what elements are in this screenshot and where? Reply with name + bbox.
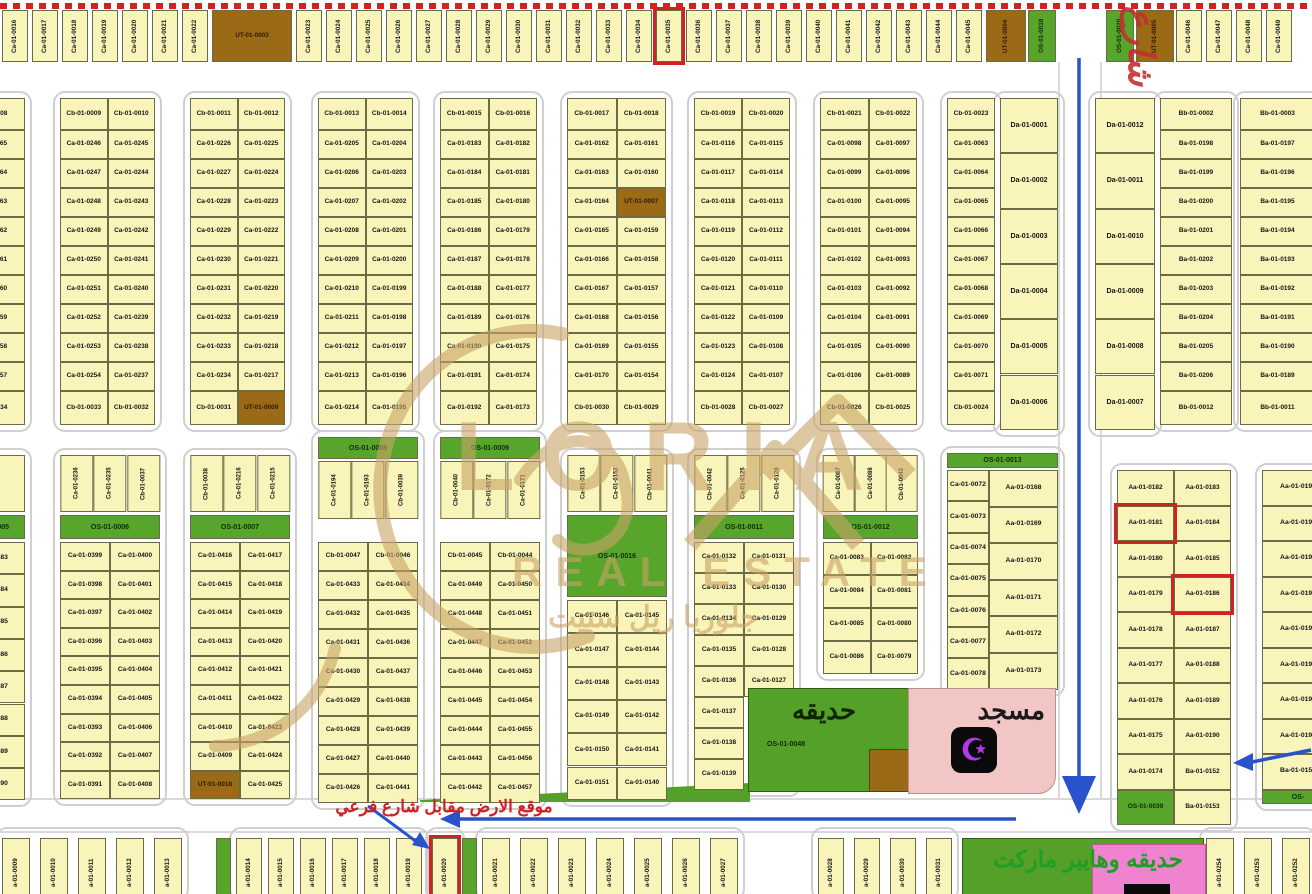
plot-ca-01-0175: Ca-01-0175	[489, 333, 538, 362]
plot-ca-01-0248: Ca-01-0248	[60, 188, 108, 217]
plot-ca-01-0123: Ca-01-0123	[694, 333, 742, 362]
plot-a-01-0254: a-01-0254	[1206, 838, 1234, 894]
plot-ca-01-0069: Ca-01-0069	[947, 304, 995, 333]
plot-ca-01-0251: Ca-01-0251	[60, 275, 108, 304]
plot-ca-01-0041: Ca-01-0041	[836, 10, 862, 62]
plot-ca-01-0176: Ca-01-0176	[489, 304, 538, 333]
plot-ca-01-0182: Ca-01-0182	[489, 130, 538, 159]
plot-aa-01-0191: Aa-01-0191	[1262, 719, 1312, 755]
plot-ca-01-0246: Ca-01-0246	[60, 130, 108, 159]
plot-ca-01-0142: Ca-01-0142	[617, 700, 667, 733]
plot-ca-01-0241: Ca-01-0241	[108, 246, 156, 275]
plot-ca-01-0018: Ca-01-0018	[62, 10, 88, 62]
plot-a-01-0013: a-01-0013	[154, 838, 182, 894]
plot-ca-01-0406: Ca-01-0406	[110, 714, 160, 743]
plot-ca-01-0405: Ca-01-0405	[110, 685, 160, 714]
plot-ca-01-0447: Ca-01-0447	[440, 629, 490, 658]
plot-ba-01-0199: Ba-01-0199	[1160, 159, 1232, 188]
plot-ca-01-0117: Ca-01-0117	[694, 159, 742, 188]
plot-ba-01-0190: Ba-01-0190	[1240, 333, 1312, 362]
plot-ba-01-0195: Ba-01-0195	[1240, 188, 1312, 217]
plot-a-01-0011: a-01-0011	[78, 838, 106, 894]
plot-ca-01-0171: Ca-01-0171	[507, 461, 540, 519]
plot-ca-01-0432: Ca-01-0432	[318, 600, 368, 629]
plot-ca-01-0143: Ca-01-0143	[617, 667, 667, 700]
plot-ca-01-0145: Ca-01-0145	[617, 600, 667, 633]
plot-ca-01-0098: Ca-01-0098	[820, 130, 869, 159]
plot-ca-01-0206: Ca-01-0206	[318, 159, 366, 188]
plot-da-01-0010: Da-01-0010	[1095, 209, 1155, 264]
plot-aa-01-0188: Aa-01-0188	[1174, 648, 1231, 684]
plot-da-01-0001: Da-01-0001	[1000, 98, 1058, 153]
plot-ca-01-0392: Ca-01-0392	[60, 742, 110, 771]
plot-cb-01-0038: Cb-01-0038	[190, 455, 223, 512]
plot-ca-01-0154: Ca-01-0154	[617, 362, 667, 391]
plot-ca-01-0077: Ca-01-0077	[947, 627, 989, 658]
plot-os-01-0007: OS-01-0007	[190, 515, 290, 539]
plot-ca-01-0132: Ca-01-0132	[694, 542, 744, 573]
plot-ca-01-0090: Ca-01-0090	[869, 333, 918, 362]
plot-ca-01-0100: Ca-01-0100	[820, 188, 869, 217]
plot-ba-01-0205: Ba-01-0205	[1160, 333, 1232, 362]
plot-ca-01-0147: Ca-01-0147	[567, 633, 617, 666]
plot-ca-01-0031: Ca-01-0031	[536, 10, 562, 62]
plot-aa-01-0180: Aa-01-0180	[1117, 541, 1174, 577]
plot-ca-01-0162: Ca-01-0162	[567, 130, 617, 159]
plot-ca-01-0159: Ca-01-0159	[617, 217, 667, 246]
plot-aa-01-0177: Aa-01-0177	[1117, 648, 1174, 684]
plot-da-01-0006: Da-01-0006	[1000, 375, 1058, 430]
plot-ca-01-0450: Ca-01-0450	[490, 571, 540, 600]
plot-ca-01-0253: Ca-01-0253	[60, 333, 108, 362]
plot-ca-01-0027: Ca-01-0027	[416, 10, 442, 62]
plot-ca-01-0452: Ca-01-0452	[490, 629, 540, 658]
plot-ca-01-0068: Ca-01-0068	[947, 275, 995, 304]
plot-ca-01-0082: Ca-01-0082	[871, 542, 919, 575]
plot-cb-01-0042: Cb-01-0042	[694, 455, 727, 512]
plot-cb-01-0029: Cb-01-0029	[617, 391, 667, 425]
plot-ca-01-0438: Ca-01-0438	[368, 687, 418, 716]
mosque-area: مسجد ☪	[908, 688, 1056, 794]
plot-ca-01-0209: Ca-01-0209	[318, 246, 366, 275]
plot-ca-01-0065: Ca-01-0065	[947, 188, 995, 217]
plot-ca-01-0446: Ca-01-0446	[440, 658, 490, 687]
plot-ca-01-0434: Ca-01-0434	[368, 571, 418, 600]
plot-ca-01-0390: Ca-01-0390	[0, 768, 25, 800]
plot-ca-01-0124: Ca-01-0124	[694, 362, 742, 391]
plot-a-01-0025: a-01-0025	[634, 838, 662, 894]
plot-ca-01-0456: Ca-01-0456	[490, 745, 540, 774]
plot-ba-01-0200: Ba-01-0200	[1160, 188, 1232, 217]
plot-ca-01-0389: Ca-01-0389	[0, 736, 25, 768]
plot-ca-01-0173: Ca-01-0173	[489, 391, 538, 425]
plot-a-01-0027: a-01-0027	[710, 838, 738, 894]
plot-os-01-0005: OS-01-0005	[0, 515, 25, 539]
plot-ca-01-0420: Ca-01-0420	[240, 628, 290, 657]
plot-os-01-0009: OS-01-0009	[440, 437, 540, 459]
plot-ca-01-0080: Ca-01-0080	[871, 608, 919, 641]
plot-ca-01-0033: Ca-01-0033	[596, 10, 622, 62]
plot-ca-01-0232: Ca-01-0232	[190, 304, 238, 333]
plot-ca-01-0239: Ca-01-0239	[108, 304, 156, 333]
plot-ca-01-0453: Ca-01-0453	[490, 658, 540, 687]
plot-ca-01-0188: Ca-01-0188	[440, 275, 489, 304]
plot-ca-01-0195: Ca-01-0195	[366, 391, 414, 425]
plot-a-01-0252: a-01-0252	[1282, 838, 1310, 894]
plot-ca-01-0265: Ca-01-0265	[0, 130, 25, 159]
plot-ca-01-0423: Ca-01-0423	[240, 714, 290, 743]
plot-ca-01-0198: Ca-01-0198	[366, 304, 414, 333]
plot-ca-01-0101: Ca-01-0101	[820, 217, 869, 246]
plot-ba-01-0201: Ba-01-0201	[1160, 217, 1232, 246]
plot-ca-01-0071: Ca-01-0071	[947, 362, 995, 391]
plot-ca-01-0433: Ca-01-0433	[318, 571, 368, 600]
plot-ca-01-0164: Ca-01-0164	[567, 188, 617, 217]
plot-ca-01-0110: Ca-01-0110	[742, 275, 790, 304]
plot-cb-01-0044: Cb-01-0044	[490, 542, 540, 571]
plot-ca-01-0139: Ca-01-0139	[694, 759, 744, 790]
plot-ca-01-0140: Ca-01-0140	[617, 767, 667, 800]
plot-aa-01-0172: Aa-01-0172	[989, 616, 1058, 653]
plot-ca-01-0427: Ca-01-0427	[318, 745, 368, 774]
plot-ca-01-0187: Ca-01-0187	[440, 246, 489, 275]
plot-cb-01-0043: Cb-01-0043	[886, 455, 918, 512]
plot-ca-01-0236: Ca-01-0236	[60, 455, 93, 512]
plot-cb-01-0041: Cb-01-0041	[634, 455, 667, 512]
plot-cb-01-0027: Cb-01-0027	[742, 391, 790, 425]
plot-cell	[216, 838, 231, 894]
plot-ca-01-0235: Ca-01-0235	[93, 455, 126, 512]
plot-aa-01-0184: Aa-01-0184	[1174, 506, 1231, 542]
plot-ca-01-0149: Ca-01-0149	[567, 700, 617, 733]
plot-ca-01-0202: Ca-01-0202	[366, 188, 414, 217]
plot-cb-01-0024: Cb-01-0024	[947, 391, 995, 425]
plot-ca-01-0243: Ca-01-0243	[108, 188, 156, 217]
plot-ca-01-0114: Ca-01-0114	[742, 159, 790, 188]
plot-a-01-0031: a-01-0031	[926, 838, 952, 894]
plot-ba-01-0193: Ba-01-0193	[1240, 246, 1312, 275]
plot-a-01-0028: a-01-0028	[818, 838, 844, 894]
plot-ca-01-0207: Ca-01-0207	[318, 188, 366, 217]
plot-cb-01-0018: Cb-01-0018	[617, 98, 667, 130]
plot-ca-01-0220: Ca-01-0220	[238, 275, 286, 304]
plot-ca-01-0422: Ca-01-0422	[240, 685, 290, 714]
plot-ca-01-0024: Ca-01-0024	[326, 10, 352, 62]
plot-ca-01-0172: Ca-01-0172	[473, 461, 506, 519]
plot-ca-01-0191: Ca-01-0191	[440, 362, 489, 391]
plot-ca-01-0448: Ca-01-0448	[440, 600, 490, 629]
plot-ca-01-0151: Ca-01-0151	[567, 767, 617, 800]
road-edge-horizontal-bottom	[0, 831, 1312, 833]
plot-ca-01-0102: Ca-01-0102	[820, 246, 869, 275]
plot-ca-01-0092: Ca-01-0092	[869, 275, 918, 304]
plot-cb-01-0012: Cb-01-0012	[238, 98, 286, 130]
plot-os-01-0019: OS-01-0019	[1028, 10, 1056, 62]
plot-ca-01-0259: Ca-01-0259	[0, 304, 25, 333]
plot-os-01-0013: OS-01-0013	[947, 453, 1058, 468]
plot-ca-01-0214: Ca-01-0214	[318, 391, 366, 425]
plot-ca-01-0398: Ca-01-0398	[60, 571, 110, 600]
plot-ca-01-0161: Ca-01-0161	[617, 130, 667, 159]
plot-ca-01-0156: Ca-01-0156	[617, 304, 667, 333]
plot-ca-01-0252: Ca-01-0252	[60, 304, 108, 333]
plot-ba-01-0191: Ba-01-0191	[1240, 304, 1312, 333]
plot-ca-01-0138: Ca-01-0138	[694, 728, 744, 759]
plot-ca-01-0193: Ca-01-0193	[351, 461, 384, 519]
plot-ca-01-0157: Ca-01-0157	[617, 275, 667, 304]
plot-os-01-0039: OS-01-0039	[1117, 790, 1174, 826]
plot-ca-01-0419: Ca-01-0419	[240, 599, 290, 628]
plot-ca-01-0224: Ca-01-0224	[238, 159, 286, 188]
plot-ca-01-0104: Ca-01-0104	[820, 304, 869, 333]
site-location-note: موقع الارض مقابل شارع فرعي	[310, 797, 578, 817]
plot-ut-01-0007: UT-01-0007	[617, 188, 667, 217]
plot-ca-01-0126: Ca-01-0126	[761, 455, 794, 512]
plot-cb-01-0019: Cb-01-0019	[694, 98, 742, 130]
plot-ca-01-0105: Ca-01-0105	[820, 333, 869, 362]
plot-ca-01-0025: Ca-01-0025	[356, 10, 382, 62]
plot-ca-01-0063: Ca-01-0063	[947, 130, 995, 159]
plot-ca-01-0150: Ca-01-0150	[567, 733, 617, 766]
plot-cb-01-0037: Cb-01-0037	[127, 455, 160, 512]
plot-ca-01-0121: Ca-01-0121	[694, 275, 742, 304]
plot-a-01-0012: a-01-0012	[116, 838, 144, 894]
plot-ca-01-0264: Ca-01-0264	[0, 159, 25, 188]
plot-ba-01-0202: Ba-01-0202	[1160, 246, 1232, 275]
plot-ba-01-0151: Ba-01-0151	[1262, 754, 1312, 790]
plot-ca-01-0388: Ca-01-0388	[0, 704, 25, 736]
plot-ca-01-0148: Ca-01-0148	[567, 667, 617, 700]
plot-ca-01-0170: Ca-01-0170	[567, 362, 617, 391]
plot-ca-01-0386: Ca-01-0386	[0, 639, 25, 671]
plot-ca-01-0167: Ca-01-0167	[567, 275, 617, 304]
plot-aa-01-0193: Aa-01-0193	[1262, 648, 1312, 684]
plot-ca-01-0221: Ca-01-0221	[238, 246, 286, 275]
plot-ca-01-0158: Ca-01-0158	[617, 246, 667, 275]
plot-ca-01-0115: Ca-01-0115	[742, 130, 790, 159]
plot-a-01-0018: a-01-0018	[364, 838, 390, 894]
plot-ca-01-0408: Ca-01-0408	[110, 771, 160, 800]
plot-cb-01-0023: Cb-01-0023	[947, 98, 995, 130]
plot-ca-01-0200: Ca-01-0200	[366, 246, 414, 275]
plot-ca-01-0254: Ca-01-0254	[60, 362, 108, 391]
plot-ca-01-0247: Ca-01-0247	[60, 159, 108, 188]
plot-ca-01-0128: Ca-01-0128	[744, 635, 794, 666]
plot-ca-01-0425: Ca-01-0425	[240, 771, 290, 800]
plot-cb-01-0036: Cb-01-0036	[0, 455, 25, 512]
plot-ca-01-0017: Ca-01-0017	[32, 10, 58, 62]
plot-ca-01-0249: Ca-01-0249	[60, 217, 108, 246]
plot-ca-01-0445: Ca-01-0445	[440, 687, 490, 716]
plot-ca-01-0019: Ca-01-0019	[92, 10, 118, 62]
plot-ca-01-0085: Ca-01-0085	[823, 608, 871, 641]
plot-ca-01-0119: Ca-01-0119	[694, 217, 742, 246]
plot-ca-01-0076: Ca-01-0076	[947, 596, 989, 627]
plot-aa-01-0182: Aa-01-0182	[1117, 470, 1174, 506]
plot-aa-01-0174: Aa-01-0174	[1117, 754, 1174, 790]
plot-ca-01-0168: Ca-01-0168	[567, 304, 617, 333]
plot-bb-01-0012: Bb-01-0012	[1160, 391, 1232, 425]
plot-aa-01-0175: Aa-01-0175	[1117, 719, 1174, 755]
plot-ca-01-0227: Ca-01-0227	[190, 159, 238, 188]
plot-cb-01-0013: Cb-01-0013	[318, 98, 366, 130]
plot-ca-01-0192: Ca-01-0192	[440, 391, 489, 425]
plot-ca-01-0261: Ca-01-0261	[0, 246, 25, 275]
plot-da-01-0005: Da-01-0005	[1000, 319, 1058, 374]
plot-ba-01-0203: Ba-01-0203	[1160, 275, 1232, 304]
plot-ca-01-0384: Ca-01-0384	[0, 574, 25, 606]
plot-ca-01-0045: Ca-01-0045	[956, 10, 982, 62]
plot-ca-01-0263: Ca-01-0263	[0, 188, 25, 217]
plot-ca-01-0399: Ca-01-0399	[60, 542, 110, 571]
plot-ca-01-0211: Ca-01-0211	[318, 304, 366, 333]
plot-ca-01-0416: Ca-01-0416	[190, 542, 240, 571]
plot-ca-01-0229: Ca-01-0229	[190, 217, 238, 246]
plot-ca-01-0250: Ca-01-0250	[60, 246, 108, 275]
plot-ca-01-0403: Ca-01-0403	[110, 628, 160, 657]
plot-ca-01-0218: Ca-01-0218	[238, 333, 286, 362]
plot-cb-01-0014: Cb-01-0014	[366, 98, 414, 130]
plot-ca-01-0141: Ca-01-0141	[617, 733, 667, 766]
hypermarket-label: حديقه وهايبر ماركت	[972, 846, 1204, 873]
plot-ca-01-0402: Ca-01-0402	[110, 599, 160, 628]
plot-ca-01-0451: Ca-01-0451	[490, 600, 540, 629]
plot-ca-01-0035: Ca-01-0035	[656, 10, 682, 62]
plot-ca-01-0032: Ca-01-0032	[566, 10, 592, 62]
plot-ca-01-0046: Ca-01-0046	[1176, 10, 1202, 62]
plot-cb-01-0017: Cb-01-0017	[567, 98, 617, 130]
plot-ca-01-0026: Ca-01-0026	[386, 10, 412, 62]
plot-ca-01-0083: Ca-01-0083	[823, 542, 871, 575]
plot-ca-01-0180: Ca-01-0180	[489, 188, 538, 217]
plot-ba-01-0192: Ba-01-0192	[1240, 275, 1312, 304]
plot-ca-01-0075: Ca-01-0075	[947, 564, 989, 595]
plot-bb-01-0002: Bb-01-0002	[1160, 98, 1232, 130]
plot-ut-01-0018: UT-01-0018	[190, 771, 240, 800]
plot-cb-01-0040: Cb-01-0040	[440, 461, 473, 519]
plot-ca-01-0395: Ca-01-0395	[60, 656, 110, 685]
plot-aa-01-0197: Aa-01-0197	[1262, 506, 1312, 542]
plot-aa-01-0192: Aa-01-0192	[1262, 683, 1312, 719]
plot-ca-01-0165: Ca-01-0165	[567, 217, 617, 246]
plot-ca-01-0397: Ca-01-0397	[60, 599, 110, 628]
plot-ut-01-0004: UT-01-0004	[986, 10, 1026, 62]
plot-ba-01-0153: Ba-01-0153	[1174, 790, 1231, 826]
plot-ca-01-0111: Ca-01-0111	[742, 246, 790, 275]
plot-ut-01-0009: UT-01-0009	[238, 391, 286, 425]
plot-ca-01-0103: Ca-01-0103	[820, 275, 869, 304]
plot-ca-01-0396: Ca-01-0396	[60, 628, 110, 657]
plot-ca-01-0020: Ca-01-0020	[122, 10, 148, 62]
plot-ca-01-0205: Ca-01-0205	[318, 130, 366, 159]
plot-ca-01-0230: Ca-01-0230	[190, 246, 238, 275]
plot-ca-01-0260: Ca-01-0260	[0, 275, 25, 304]
plot-cell	[462, 838, 477, 894]
plot-ca-01-0112: Ca-01-0112	[742, 217, 790, 246]
plot-ca-01-0152: Ca-01-0152	[600, 455, 633, 512]
plot-ca-01-0081: Ca-01-0081	[871, 575, 919, 608]
plot-bb-01-0011: Bb-01-0011	[1240, 391, 1312, 425]
plot-ca-01-0400: Ca-01-0400	[110, 542, 160, 571]
plot-ca-01-0037: Ca-01-0037	[716, 10, 742, 62]
plot-aa-01-0183: Aa-01-0183	[1174, 470, 1231, 506]
plot-cb-01-0034: Cb-01-0034	[0, 391, 25, 425]
plot-ca-01-0067: Ca-01-0067	[947, 246, 995, 275]
plot-ca-01-0431: Ca-01-0431	[318, 629, 368, 658]
plot-ca-01-0049: Ca-01-0049	[1266, 10, 1292, 62]
plot-ca-01-0097: Ca-01-0097	[869, 130, 918, 159]
plot-aa-01-0181: Aa-01-0181	[1117, 506, 1174, 542]
plot-ca-01-0237: Ca-01-0237	[108, 362, 156, 391]
plot-ca-01-0219: Ca-01-0219	[238, 304, 286, 333]
plot-ca-01-0196: Ca-01-0196	[366, 362, 414, 391]
plot-aa-01-0186: Aa-01-0186	[1174, 577, 1231, 613]
plot-cb-01-0016: Cb-01-0016	[489, 98, 538, 130]
plot-ca-01-0169: Ca-01-0169	[567, 333, 617, 362]
plot-a-01-0253: a-01-0253	[1244, 838, 1272, 894]
plot-ba-01-0152: Ba-01-0152	[1174, 754, 1231, 790]
plot-ca-01-0201: Ca-01-0201	[366, 217, 414, 246]
plot-ca-01-0228: Ca-01-0228	[190, 188, 238, 217]
plot-ca-01-0146: Ca-01-0146	[567, 600, 617, 633]
plot-ca-01-0210: Ca-01-0210	[318, 275, 366, 304]
plot-ca-01-0042: Ca-01-0042	[866, 10, 892, 62]
plot-ca-01-0190: Ca-01-0190	[440, 333, 489, 362]
plot-cb-01-0010: Cb-01-0010	[108, 98, 156, 130]
plot-aa-01-0196: Aa-01-0196	[1262, 541, 1312, 577]
plot-a-01-0019: a-01-0019	[396, 838, 422, 894]
plot-ca-01-0225: Ca-01-0225	[238, 130, 286, 159]
plot-cb-01-0028: Cb-01-0028	[694, 391, 742, 425]
plot-ca-01-0030: Ca-01-0030	[506, 10, 532, 62]
plot-ca-01-0179: Ca-01-0179	[489, 217, 538, 246]
plot-ca-01-0048: Ca-01-0048	[1236, 10, 1262, 62]
plot-ca-01-0233: Ca-01-0233	[190, 333, 238, 362]
plot-ca-01-0166: Ca-01-0166	[567, 246, 617, 275]
plot-ca-01-0203: Ca-01-0203	[366, 159, 414, 188]
plot-ca-01-0153: Ca-01-0153	[567, 455, 600, 512]
plot-ca-01-0133: Ca-01-0133	[694, 573, 744, 604]
plot-ca-01-0435: Ca-01-0435	[368, 600, 418, 629]
route-arrow-down-icon	[1062, 776, 1096, 814]
plot-ca-01-0439: Ca-01-0439	[368, 716, 418, 745]
plot-cb-01-0046: Cb-01-0046	[368, 542, 418, 571]
plot-ca-01-0087: Ca-01-0087	[823, 455, 855, 512]
plot-cb-01-0039: Cb-01-0039	[385, 461, 418, 519]
plot-ca-01-0177: Ca-01-0177	[489, 275, 538, 304]
garden-os-label: OS-01-0048	[767, 741, 805, 748]
plot-cb-01-0045: Cb-01-0045	[440, 542, 490, 571]
plot-ca-01-0093: Ca-01-0093	[869, 246, 918, 275]
plot-cb-01-0020: Cb-01-0020	[742, 98, 790, 130]
plot-ca-01-0185: Ca-01-0185	[440, 188, 489, 217]
plot-ca-01-0095: Ca-01-0095	[869, 188, 918, 217]
plot-a-01-0024: a-01-0024	[596, 838, 624, 894]
plot-a-01-0009: a-01-0009	[2, 838, 30, 894]
plot-ca-01-0066: Ca-01-0066	[947, 217, 995, 246]
plot-ca-01-0120: Ca-01-0120	[694, 246, 742, 275]
plot-ca-01-0078: Ca-01-0078	[947, 658, 989, 689]
plot-ca-01-0454: Ca-01-0454	[490, 687, 540, 716]
plot-ca-01-0208: Ca-01-0208	[318, 217, 366, 246]
plot-ca-01-0134: Ca-01-0134	[694, 604, 744, 635]
plot-a-01-0030: a-01-0030	[890, 838, 916, 894]
plot-ca-01-0437: Ca-01-0437	[368, 658, 418, 687]
plot-ca-01-0414: Ca-01-0414	[190, 599, 240, 628]
plot-ut-01-0003: UT-01-0003	[212, 10, 292, 62]
plot-aa-01-0179: Aa-01-0179	[1117, 577, 1174, 613]
plot-ca-01-0262: Ca-01-0262	[0, 217, 25, 246]
